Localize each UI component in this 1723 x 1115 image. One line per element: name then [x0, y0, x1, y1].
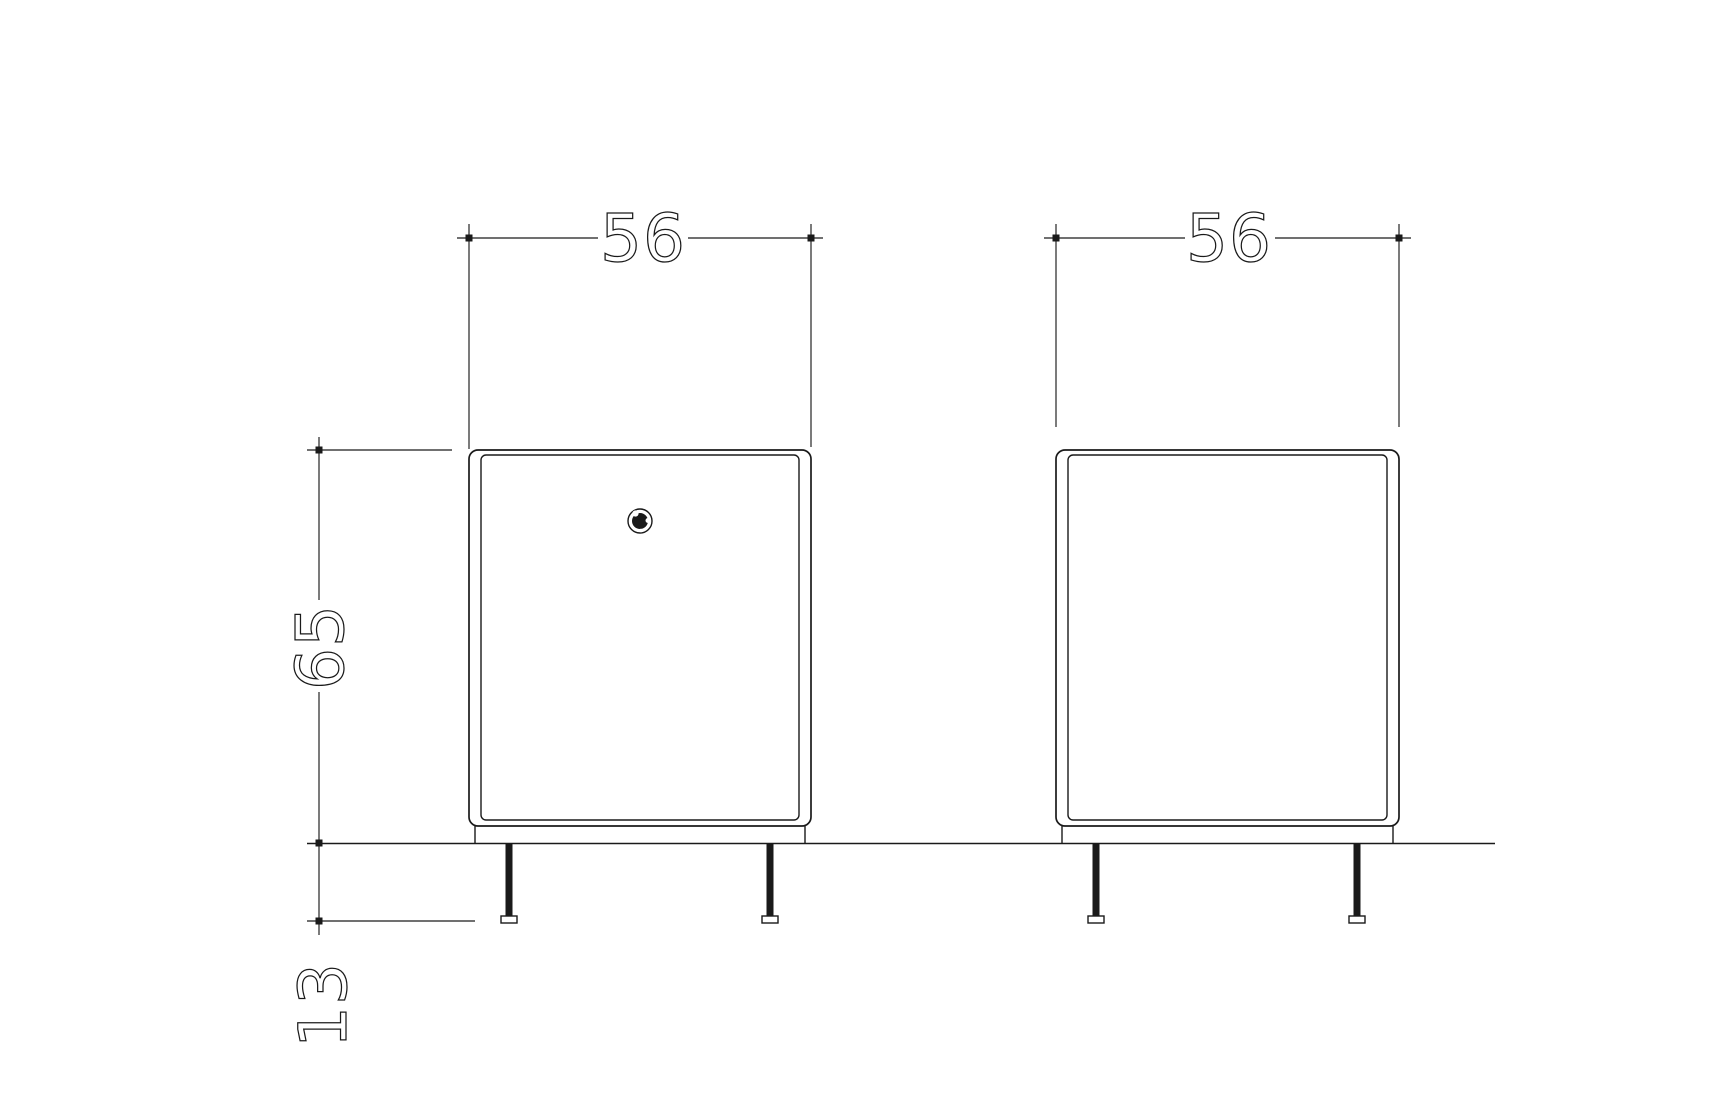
left-cabinet-leg — [767, 844, 774, 916]
right-cabinet-outline — [1056, 450, 1399, 826]
left-cabinet — [469, 450, 811, 923]
lock-knob-highlight — [632, 510, 638, 516]
right-cabinet-door-panel — [1068, 455, 1387, 820]
dimension-tick — [808, 235, 815, 242]
dimension-tick — [316, 840, 323, 847]
dimension-label-left-width: 56 — [600, 200, 686, 277]
lock-knob-icon — [628, 509, 652, 533]
lock-knob-highlight — [646, 518, 651, 523]
right-cabinet-leg — [1354, 844, 1361, 916]
dimension-tick — [1053, 235, 1060, 242]
right-cabinet-leg-foot — [1349, 916, 1365, 923]
dimension-label-leg-height: 13 — [285, 962, 362, 1048]
left-cabinet-leg-foot — [762, 916, 778, 923]
dimension-tick — [466, 235, 473, 242]
left-cabinet-outline — [469, 450, 811, 826]
dimension-tick — [1396, 235, 1403, 242]
right-cabinet-leg — [1093, 844, 1100, 916]
cad-drawing-canvas: 56 56 65 13 — [0, 0, 1723, 1115]
dimension-label-height: 65 — [282, 604, 359, 690]
lock-knob-highlight — [639, 529, 643, 533]
left-cabinet-leg — [506, 844, 513, 916]
right-cabinet — [1056, 450, 1399, 923]
dimension-tick — [316, 918, 323, 925]
dimension-width-right: 56 — [1044, 200, 1411, 427]
right-cabinet-leg-foot — [1088, 916, 1104, 923]
dimension-label-right-width: 56 — [1186, 200, 1272, 277]
dimension-leg-height: 13 — [285, 918, 475, 1048]
left-cabinet-leg-foot — [501, 916, 517, 923]
dimension-width-left: 56 — [457, 200, 823, 449]
furniture-elevation-drawing: 56 56 65 13 — [0, 0, 1723, 1115]
dimension-height: 65 — [282, 437, 452, 935]
left-cabinet-door-panel — [481, 455, 799, 820]
dimension-tick — [316, 447, 323, 454]
